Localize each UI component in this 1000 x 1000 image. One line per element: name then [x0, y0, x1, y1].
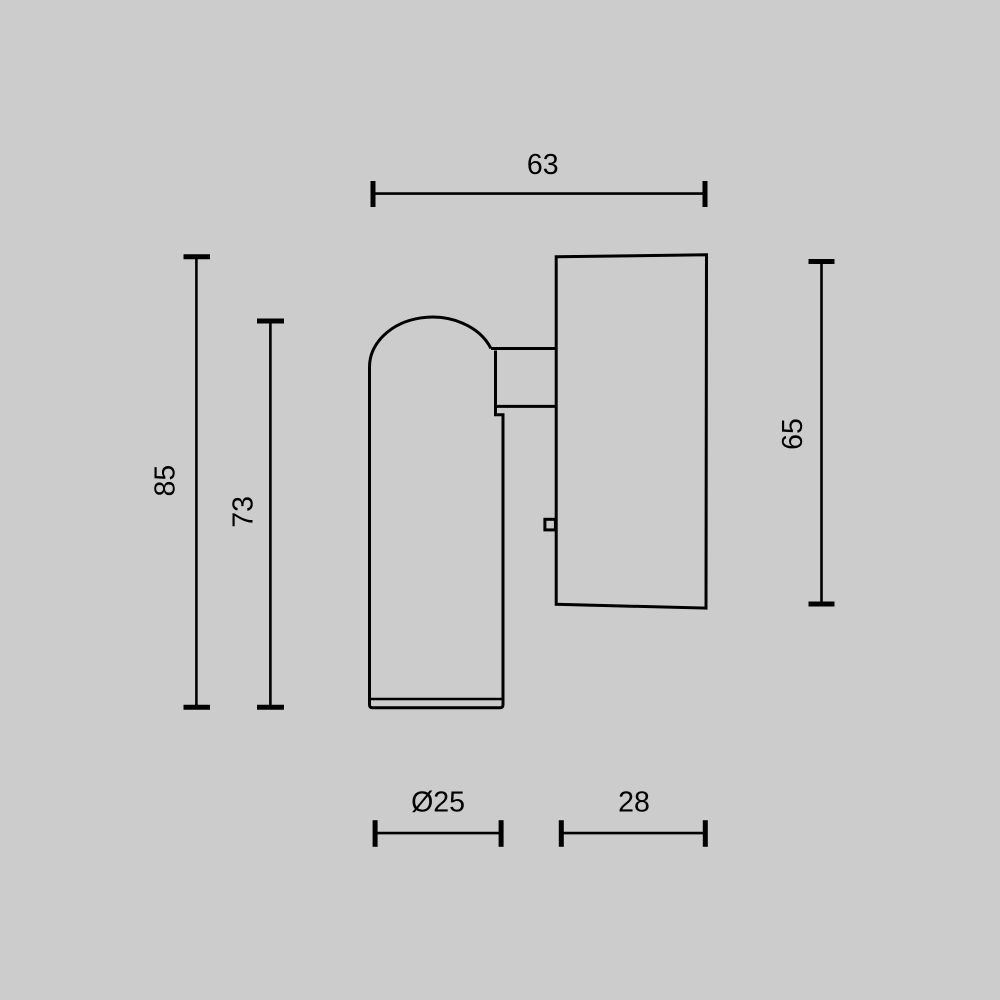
svg-text:85: 85 [150, 465, 182, 497]
svg-text:Ø25: Ø25 [411, 786, 465, 818]
svg-text:65: 65 [777, 418, 809, 450]
svg-text:63: 63 [527, 149, 559, 181]
svg-text:28: 28 [618, 786, 650, 818]
svg-text:73: 73 [227, 496, 259, 528]
